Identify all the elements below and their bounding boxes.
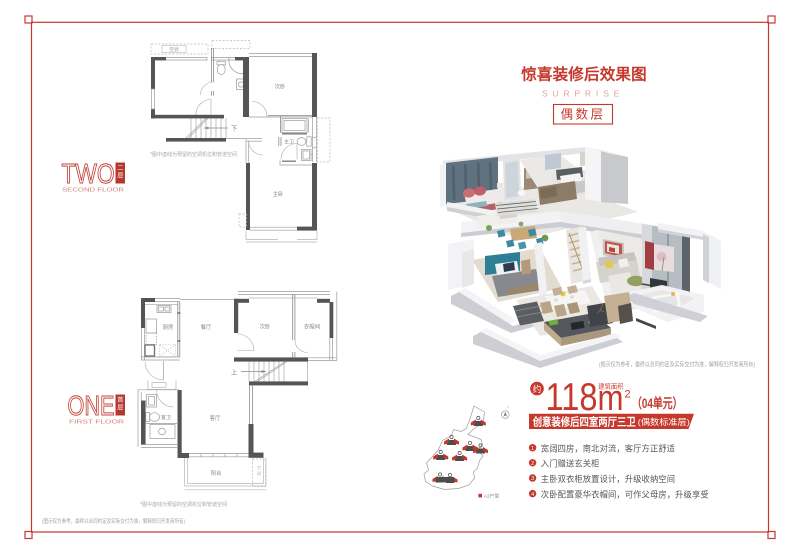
svg-text:餐厅: 餐厅 xyxy=(201,323,212,331)
svg-text:3: 3 xyxy=(531,476,534,482)
svg-text:主卧: 主卧 xyxy=(273,190,284,198)
svg-text:空调: 空调 xyxy=(169,46,179,53)
svg-text:（04单元）: （04单元） xyxy=(632,395,683,411)
svg-text:1: 1 xyxy=(531,446,534,452)
svg-text:m: m xyxy=(598,377,624,418)
svg-text:次卧配置豪华衣帽间，可作父母房，升级享受: 次卧配置豪华衣帽间，可作父母房，升级享受 xyxy=(541,490,709,500)
svg-text:约: 约 xyxy=(533,384,542,394)
svg-text:创意装修后四室两厅三卫: 创意装修后四室两厅三卫 xyxy=(532,414,636,428)
svg-text:118: 118 xyxy=(546,376,598,419)
svg-text:客卫: 客卫 xyxy=(161,414,171,421)
svg-text:2: 2 xyxy=(531,461,534,467)
svg-text:*图中虚线为预留的空调机位和管道空间: *图中虚线为预留的空调机位和管道空间 xyxy=(150,151,237,158)
svg-text:FIRST FLOOR: FIRST FLOOR xyxy=(69,420,124,426)
svg-text:(偶数标准层): (偶数标准层) xyxy=(638,416,690,427)
svg-text:主卧双衣柜放置设计，升级收纳空间: 主卧双衣柜放置设计，升级收纳空间 xyxy=(541,474,675,484)
svg-text:层: 层 xyxy=(117,405,123,412)
svg-text:(图示仅为参考，最终以合同约定及实际交付为准，解释权归开发商: (图示仅为参考，最终以合同约定及实际交付为准，解释权归开发商所有) xyxy=(42,517,185,525)
svg-text:上: 上 xyxy=(231,368,238,377)
svg-text:4: 4 xyxy=(531,492,534,498)
svg-text:TWO: TWO xyxy=(62,158,115,189)
svg-text:衣帽间: 衣帽间 xyxy=(304,323,320,331)
svg-text:首: 首 xyxy=(117,396,123,404)
svg-text:阳台: 阳台 xyxy=(211,469,222,477)
svg-text:空: 空 xyxy=(257,464,261,470)
svg-text:入门赠送玄关柜: 入门赠送玄关柜 xyxy=(541,459,600,469)
svg-text:2: 2 xyxy=(625,388,631,400)
svg-text:SECOND FLOOR: SECOND FLOOR xyxy=(62,188,124,194)
svg-text:下: 下 xyxy=(231,125,238,133)
svg-text:次卧: 次卧 xyxy=(275,83,286,91)
svg-text:惊喜装修后效果图: 惊喜装修后效果图 xyxy=(521,65,647,84)
svg-text:ONE: ONE xyxy=(68,390,115,421)
svg-text:次卧: 次卧 xyxy=(260,323,271,331)
svg-text:客厅: 客厅 xyxy=(210,414,221,422)
svg-text:调: 调 xyxy=(257,470,261,477)
svg-text:SURPRISE: SURPRISE xyxy=(542,89,624,99)
svg-text:层: 层 xyxy=(117,173,123,180)
svg-text:A2户型: A2户型 xyxy=(484,492,500,499)
svg-text:厨房: 厨房 xyxy=(163,323,174,331)
svg-text:偶数层: 偶数层 xyxy=(560,107,605,122)
svg-text:*图中虚线为预留的空调机位和管道空间: *图中虚线为预留的空调机位和管道空间 xyxy=(140,501,227,508)
svg-text:(图示仅为参考，最终以合同约定及实际交付为准，解释权归开发商: (图示仅为参考，最终以合同约定及实际交付为准，解释权归开发商所有) xyxy=(599,361,755,369)
svg-text:二: 二 xyxy=(117,165,123,172)
svg-text:宽阔四房，南北对流，客厅方正舒适: 宽阔四房，南北对流，客厅方正舒适 xyxy=(541,444,675,454)
